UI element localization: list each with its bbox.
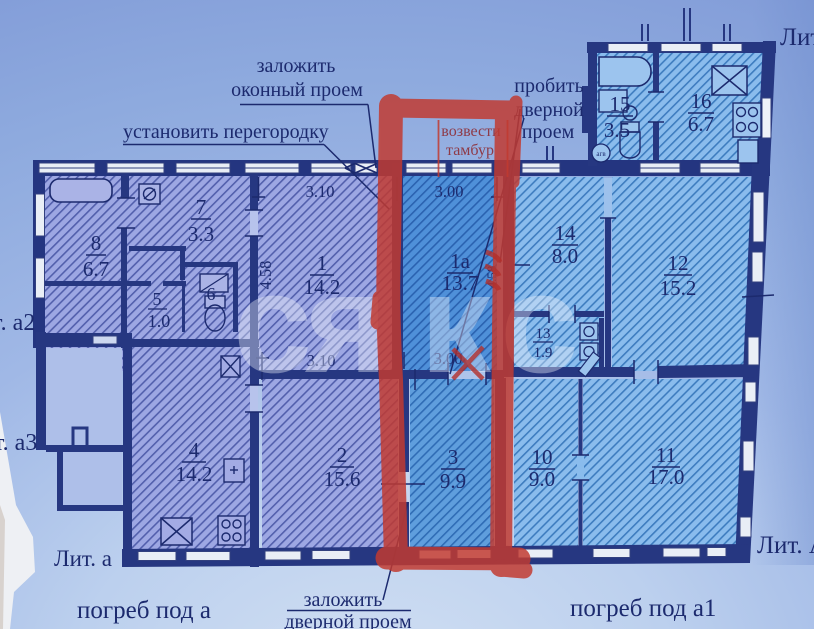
svg-text:16: 16 xyxy=(691,89,712,113)
svg-text:агв: агв xyxy=(596,150,606,158)
svg-text:11: 11 xyxy=(656,443,676,467)
svg-text:заложить: заложить xyxy=(304,589,383,611)
svg-text:Лит. А: Лит. А xyxy=(757,532,814,559)
svg-text:5: 5 xyxy=(153,289,162,309)
svg-text:оконный проем: оконный проем xyxy=(231,79,363,101)
svg-text:12: 12 xyxy=(668,251,689,275)
svg-text:4: 4 xyxy=(189,438,200,462)
svg-text:14.2: 14.2 xyxy=(176,462,213,486)
svg-text:6.7: 6.7 xyxy=(688,112,714,136)
svg-text:т. а3: т. а3 xyxy=(0,430,37,456)
svg-text:17.0: 17.0 xyxy=(648,465,685,489)
svg-text:3: 3 xyxy=(448,445,459,469)
svg-text:7: 7 xyxy=(196,195,207,219)
svg-text:2: 2 xyxy=(337,443,348,467)
svg-text:погреб под а1: погреб под а1 xyxy=(570,595,716,622)
svg-text:6: 6 xyxy=(207,284,216,304)
svg-text:Лит.: Лит. xyxy=(780,24,814,51)
svg-text:с: с xyxy=(233,244,312,403)
svg-text:погреб под а: погреб под а xyxy=(77,597,211,624)
svg-text:15.6: 15.6 xyxy=(324,467,361,491)
svg-text:Лит. а: Лит. а xyxy=(54,546,112,571)
svg-text:14: 14 xyxy=(555,221,577,245)
svg-text:3.00: 3.00 xyxy=(435,182,464,201)
svg-text:проем: проем xyxy=(522,121,575,143)
svg-text:15: 15 xyxy=(610,92,631,116)
svg-text:6.7: 6.7 xyxy=(83,257,109,281)
svg-text:3.3: 3.3 xyxy=(188,222,214,246)
svg-text:1.0: 1.0 xyxy=(148,311,171,331)
svg-text:возвести: возвести xyxy=(441,123,501,140)
svg-text:3.5: 3.5 xyxy=(604,118,630,142)
svg-text:15.2: 15.2 xyxy=(660,276,697,300)
svg-text:т. а2: т. а2 xyxy=(0,310,35,336)
svg-text:8: 8 xyxy=(91,231,102,255)
svg-text:9.0: 9.0 xyxy=(529,467,555,491)
svg-text:дверной: дверной xyxy=(514,99,584,121)
svg-text:заложить: заложить xyxy=(257,55,336,77)
svg-text:дверной проем: дверной проем xyxy=(284,611,412,629)
svg-text:установить перегородку: установить перегородку xyxy=(123,121,329,143)
svg-text:3.10: 3.10 xyxy=(306,182,335,201)
svg-text:тамбур: тамбур xyxy=(446,142,494,159)
svg-text:9.9: 9.9 xyxy=(440,469,466,493)
svg-text:пробить: пробить xyxy=(514,75,583,97)
svg-text:10: 10 xyxy=(532,445,553,469)
